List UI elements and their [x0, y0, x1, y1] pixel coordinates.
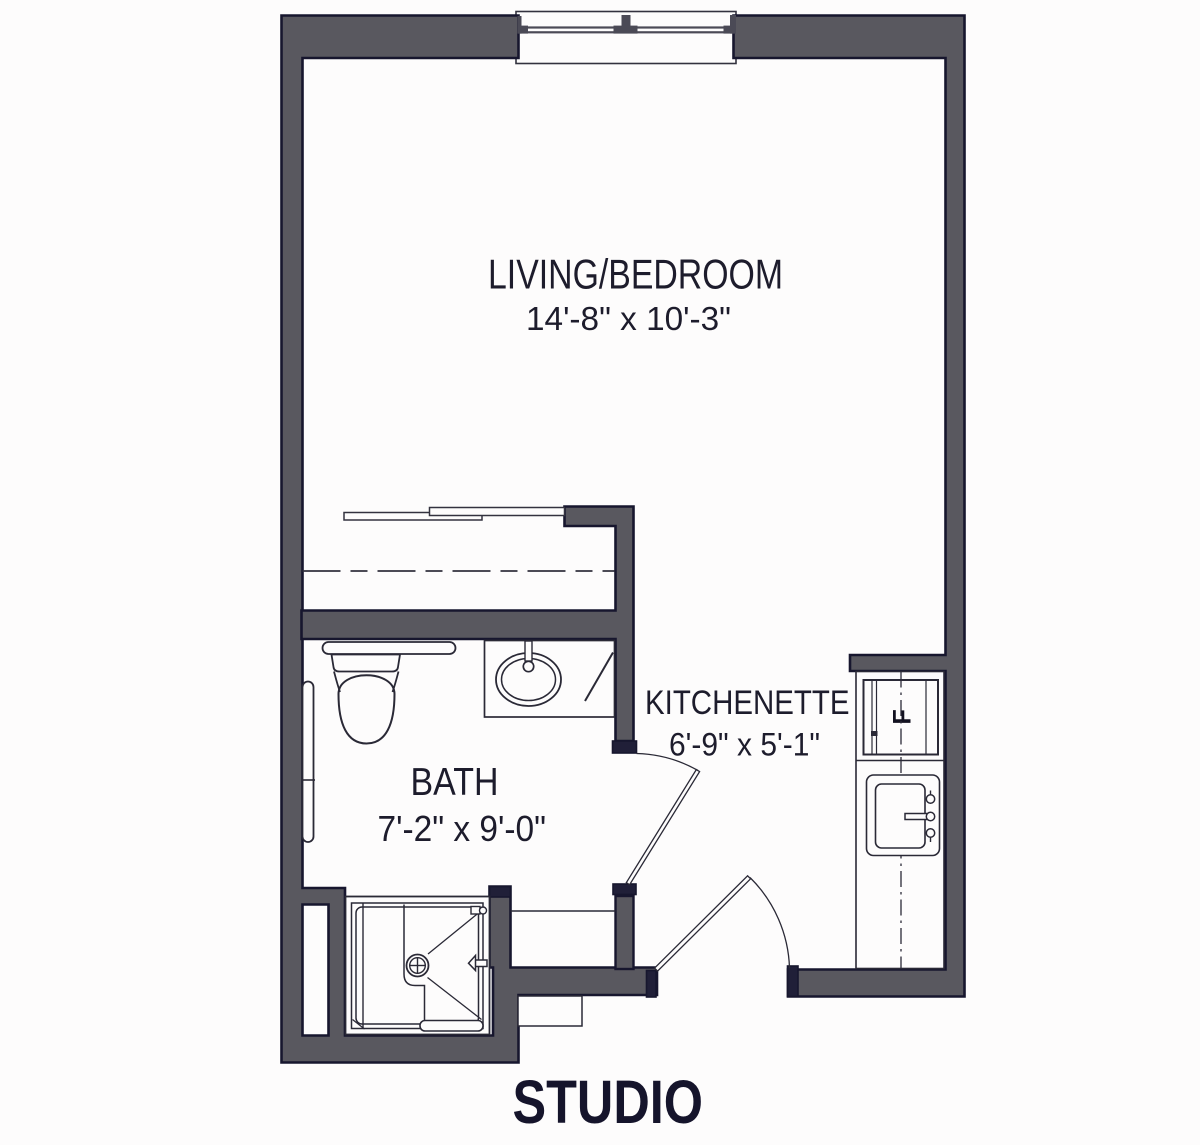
svg-text:LIVING/BEDROOM: LIVING/BEDROOM — [488, 251, 783, 298]
svg-text:STUDIO: STUDIO — [513, 1068, 704, 1136]
svg-text:BATH: BATH — [411, 761, 499, 804]
svg-text:14'-8" x 10'-3": 14'-8" x 10'-3" — [526, 300, 731, 337]
svg-text:6'-9" x 5'-1": 6'-9" x 5'-1" — [669, 727, 820, 763]
svg-text:KITCHENETTE: KITCHENETTE — [645, 684, 850, 722]
svg-text:7'-2" x 9'-0": 7'-2" x 9'-0" — [378, 808, 547, 849]
svg-text:F: F — [889, 709, 917, 724]
